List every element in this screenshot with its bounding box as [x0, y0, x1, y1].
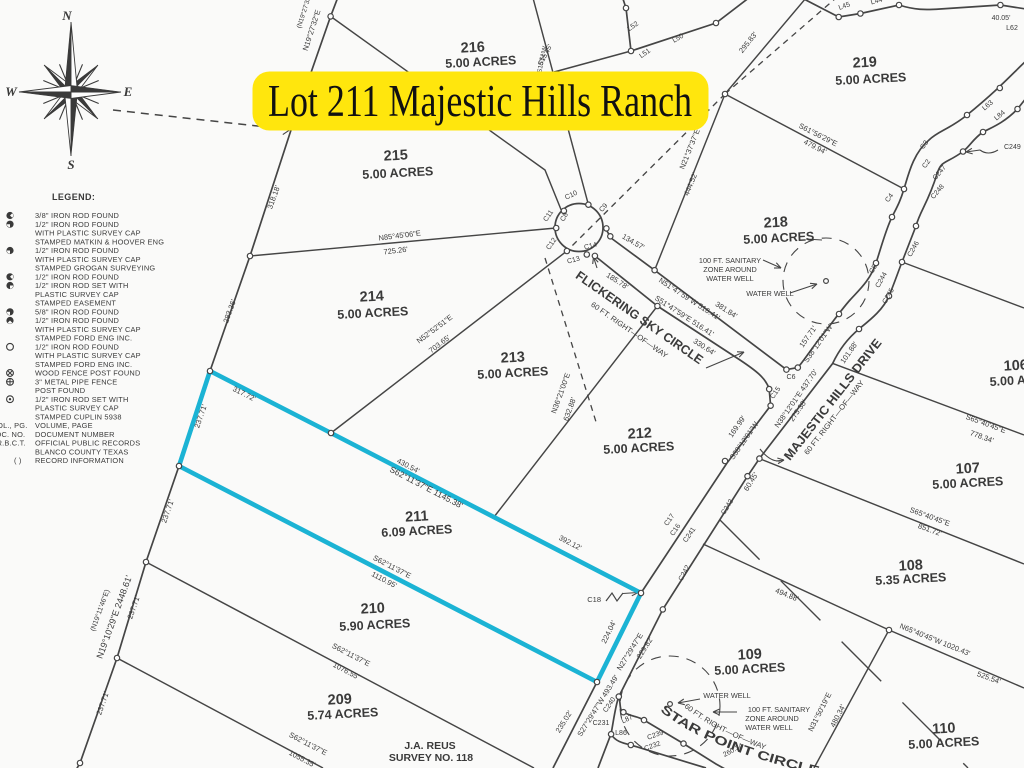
svg-text:WITH PLASTIC SURVEY CAP: WITH PLASTIC SURVEY CAP: [35, 255, 141, 264]
svg-text:( ): ( ): [14, 456, 22, 465]
svg-text:100 FT. SANITARY: 100 FT. SANITARY: [699, 256, 761, 265]
svg-text:213: 213: [500, 349, 525, 366]
svg-text:1/2" IRON ROD FOUND: 1/2" IRON ROD FOUND: [35, 272, 119, 281]
svg-text:1/2" IRON ROD FOUND: 1/2" IRON ROD FOUND: [35, 220, 119, 229]
svg-text:WITH PLASTIC SURVEY CAP: WITH PLASTIC SURVEY CAP: [35, 351, 141, 360]
svg-text:WATER WELL: WATER WELL: [746, 289, 793, 298]
svg-text:STAMPED FORD ENG INC.: STAMPED FORD ENG INC.: [35, 334, 132, 343]
svg-text:W: W: [5, 84, 18, 99]
svg-text:C18: C18: [587, 595, 601, 604]
svg-text:3" METAL PIPE FENCE: 3" METAL PIPE FENCE: [35, 377, 117, 386]
svg-text:PLASTIC SURVEY CAP: PLASTIC SURVEY CAP: [35, 290, 119, 299]
svg-text:STAMPED EASEMENT: STAMPED EASEMENT: [35, 299, 116, 308]
svg-text:C231: C231: [593, 720, 610, 727]
svg-text:WATER WELL: WATER WELL: [706, 274, 753, 283]
svg-text:STAMPED CUPLIN 5938: STAMPED CUPLIN 5938: [35, 412, 122, 421]
svg-text:5.00 A: 5.00 A: [989, 373, 1024, 389]
svg-text:POST FOUND: POST FOUND: [35, 386, 85, 395]
svg-text:ZONE AROUND: ZONE AROUND: [745, 714, 799, 723]
svg-text:214: 214: [359, 288, 384, 305]
svg-text:C249: C249: [1004, 144, 1021, 151]
svg-text:WATER WELL: WATER WELL: [703, 691, 750, 700]
svg-text:E: E: [123, 84, 133, 99]
svg-text:DOC. NO.: DOC. NO.: [0, 430, 25, 439]
svg-text:215: 215: [383, 147, 408, 164]
svg-text:5/8" IRON ROD FOUND: 5/8" IRON ROD FOUND: [35, 307, 119, 316]
svg-text:SURVEY NO. 118: SURVEY NO. 118: [389, 752, 473, 764]
svg-text:C6: C6: [787, 374, 796, 381]
svg-text:1/2" IRON ROD SET WITH: 1/2" IRON ROD SET WITH: [35, 395, 129, 404]
svg-text:L86: L86: [615, 730, 627, 737]
svg-text:219: 219: [852, 54, 877, 71]
svg-text:1/2" IRON ROD FOUND: 1/2" IRON ROD FOUND: [35, 246, 119, 255]
svg-text:S: S: [67, 157, 74, 172]
svg-text:STAMPED MATKIN & HOOVER ENG: STAMPED MATKIN & HOOVER ENG: [35, 237, 164, 246]
svg-text:WITH PLASTIC SURVEY CAP: WITH PLASTIC SURVEY CAP: [35, 229, 141, 238]
svg-text:3/8" IRON ROD FOUND: 3/8" IRON ROD FOUND: [35, 211, 119, 220]
svg-text:OFFICIAL PUBLIC RECORDS: OFFICIAL PUBLIC RECORDS: [35, 439, 140, 448]
svg-text:O.P.R.B.C.T.: O.P.R.B.C.T.: [0, 439, 26, 448]
svg-text:L62: L62: [1006, 25, 1018, 32]
svg-text:LEGEND:: LEGEND:: [52, 192, 95, 202]
svg-text:DOCUMENT NUMBER: DOCUMENT NUMBER: [35, 430, 115, 439]
svg-text:WOOD FENCE POST FOUND: WOOD FENCE POST FOUND: [35, 369, 140, 378]
svg-text:WITH PLASTIC SURVEY CAP: WITH PLASTIC SURVEY CAP: [35, 325, 141, 334]
svg-text:100 FT. SANITARY: 100 FT. SANITARY: [748, 705, 810, 714]
svg-text:1/2" IRON ROD FOUND: 1/2" IRON ROD FOUND: [35, 342, 119, 351]
svg-text:WATER WELL: WATER WELL: [745, 723, 792, 732]
svg-text:N: N: [61, 8, 72, 23]
svg-text:1/2" IRON ROD FOUND: 1/2" IRON ROD FOUND: [35, 316, 119, 325]
svg-text:J.A. REUS: J.A. REUS: [404, 740, 455, 752]
svg-text:ZONE AROUND: ZONE AROUND: [703, 265, 757, 274]
svg-text:40.05': 40.05': [992, 15, 1011, 22]
svg-text:210: 210: [360, 600, 385, 617]
svg-text:PLASTIC SURVEY CAP: PLASTIC SURVEY CAP: [35, 404, 119, 413]
svg-text:STAMPED FORD ENG INC.: STAMPED FORD ENG INC.: [35, 360, 132, 369]
svg-text:RECORD INFORMATION: RECORD INFORMATION: [35, 456, 124, 465]
svg-text:1/2" IRON ROD SET WITH: 1/2" IRON ROD SET WITH: [35, 281, 129, 290]
svg-text:218: 218: [763, 214, 788, 231]
svg-text:VOLUME, PAGE: VOLUME, PAGE: [35, 421, 93, 430]
svg-text:VOL., PG.: VOL., PG.: [0, 421, 27, 430]
svg-text:BLANCO COUNTY TEXAS: BLANCO COUNTY TEXAS: [35, 447, 128, 456]
svg-text:STAMPED GROGAN SURVEYING: STAMPED GROGAN SURVEYING: [35, 264, 155, 273]
svg-text:106: 106: [1003, 357, 1024, 374]
svg-text:Lot 211 Majestic Hills Ranch: Lot 211 Majestic Hills Ranch: [268, 76, 692, 126]
